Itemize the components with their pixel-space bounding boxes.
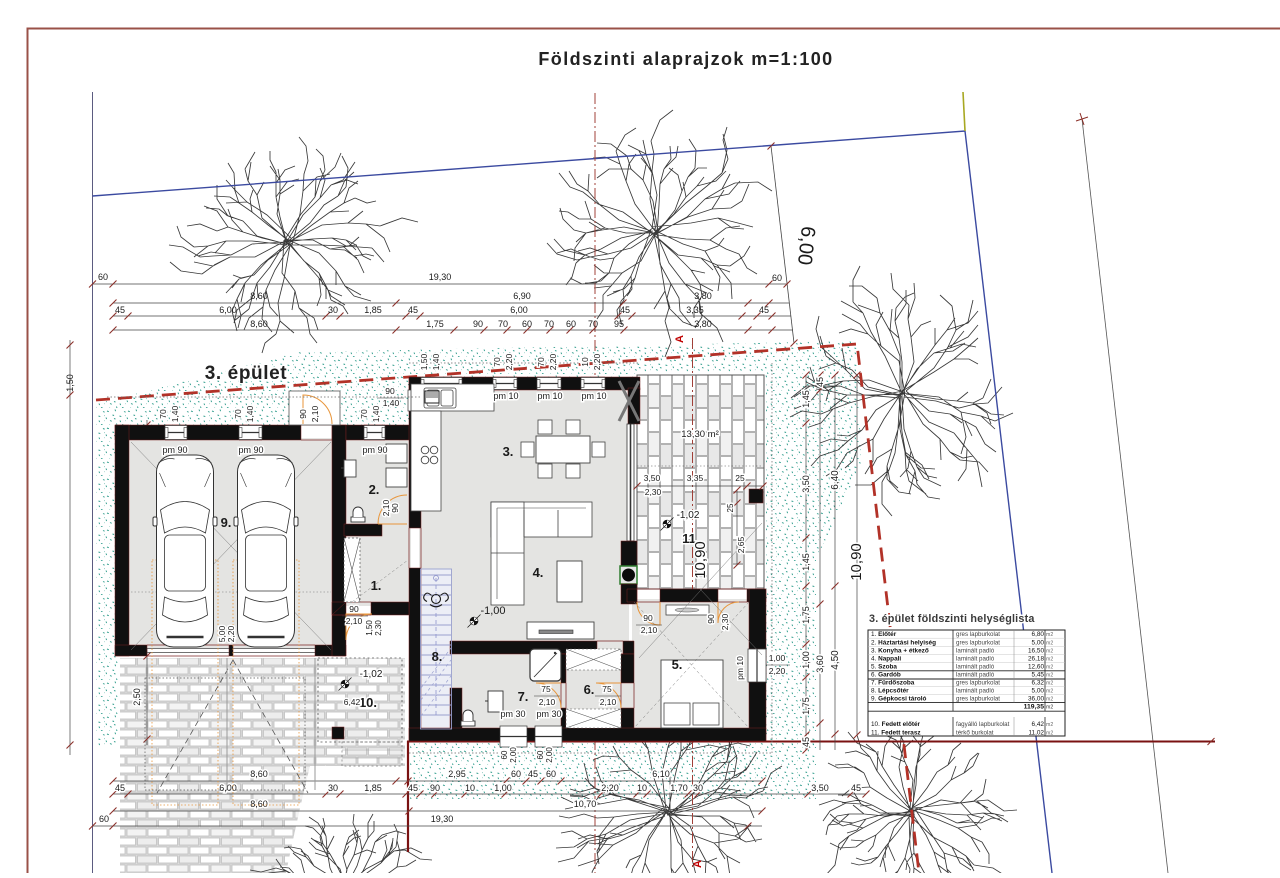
- svg-text:4,50: 4,50: [830, 650, 841, 670]
- svg-text:pm 90: pm 90: [362, 445, 387, 455]
- svg-text:30: 30: [693, 783, 703, 793]
- svg-text:m2: m2: [1046, 689, 1053, 695]
- svg-text:pm 10: pm 10: [581, 391, 606, 401]
- svg-text:3. épület földszinti helységli: 3. épület földszinti helységlista: [869, 613, 1035, 625]
- svg-text:1,75: 1,75: [801, 697, 811, 715]
- svg-text:36,00: 36,00: [1028, 696, 1044, 703]
- svg-text:2,10: 2,10: [310, 405, 320, 422]
- svg-text:m2: m2: [1046, 705, 1053, 711]
- svg-text:5.: 5.: [672, 657, 683, 672]
- svg-text:pm 90: pm 90: [162, 445, 187, 455]
- svg-text:70: 70: [158, 409, 168, 419]
- svg-text:25: 25: [735, 473, 745, 483]
- svg-text:7.: 7.: [518, 689, 529, 704]
- svg-text:m2: m2: [1046, 722, 1053, 728]
- svg-text:-1,02: -1,02: [360, 669, 383, 680]
- svg-text:3,50: 3,50: [811, 783, 829, 793]
- svg-text:gres lapburkolat: gres lapburkolat: [956, 639, 1000, 646]
- svg-text:8,60: 8,60: [250, 799, 268, 809]
- svg-text:6,90: 6,90: [513, 291, 531, 301]
- svg-text:45: 45: [408, 305, 418, 315]
- svg-text:laminált padló: laminált padló: [956, 663, 995, 670]
- svg-text:2,30: 2,30: [645, 487, 662, 497]
- svg-text:60: 60: [566, 319, 576, 329]
- svg-text:1,75: 1,75: [801, 606, 811, 624]
- svg-text:19,30: 19,30: [431, 814, 454, 824]
- svg-text:1,00: 1,00: [769, 653, 786, 663]
- svg-text:90: 90: [385, 386, 395, 396]
- svg-text:A: A: [692, 860, 704, 868]
- svg-text:119,35: 119,35: [1024, 704, 1045, 711]
- svg-text:6.: 6.: [584, 682, 595, 697]
- svg-text:8.: 8.: [432, 649, 443, 664]
- svg-text:laminált padló: laminált padló: [956, 655, 995, 662]
- svg-text:10. Fedett előtér: 10. Fedett előtér: [871, 721, 921, 728]
- svg-text:45: 45: [620, 305, 630, 315]
- svg-text:3,80: 3,80: [694, 291, 712, 301]
- svg-text:6,00: 6,00: [793, 225, 819, 266]
- svg-text:60: 60: [500, 750, 509, 759]
- svg-text:45: 45: [115, 305, 125, 315]
- svg-text:1,40: 1,40: [431, 353, 441, 370]
- svg-text:1,70: 1,70: [670, 783, 688, 793]
- svg-text:10.: 10.: [359, 695, 377, 710]
- svg-text:45: 45: [759, 305, 769, 315]
- svg-text:11,02: 11,02: [1028, 730, 1044, 737]
- svg-text:3,80: 3,80: [694, 319, 712, 329]
- svg-text:pm 10: pm 10: [537, 391, 562, 401]
- svg-text:6,42: 6,42: [1032, 721, 1045, 728]
- svg-text:1. Előtér: 1. Előtér: [871, 631, 897, 638]
- svg-text:4. Nappali: 4. Nappali: [871, 655, 901, 662]
- svg-text:3. Konyha + étkező: 3. Konyha + étkező: [871, 647, 929, 654]
- svg-text:2,00: 2,00: [509, 747, 518, 763]
- svg-text:30: 30: [328, 783, 338, 793]
- svg-text:pm 90: pm 90: [238, 445, 263, 455]
- svg-text:75: 75: [602, 684, 612, 694]
- svg-text:pm 10: pm 10: [493, 391, 518, 401]
- svg-text:2,50: 2,50: [132, 688, 142, 706]
- svg-text:2,10: 2,10: [539, 697, 556, 707]
- svg-text:6,42: 6,42: [344, 697, 361, 707]
- svg-text:30: 30: [328, 305, 338, 315]
- svg-text:m2: m2: [1046, 681, 1053, 687]
- svg-text:10: 10: [580, 357, 590, 367]
- svg-text:90: 90: [298, 409, 308, 419]
- svg-text:45: 45: [115, 783, 125, 793]
- svg-text:2,10: 2,10: [600, 697, 617, 707]
- svg-text:70: 70: [544, 319, 554, 329]
- svg-text:45: 45: [408, 783, 418, 793]
- svg-text:2,10: 2,10: [381, 499, 391, 516]
- svg-text:5,45: 5,45: [1032, 671, 1045, 678]
- svg-text:2,10: 2,10: [346, 616, 363, 626]
- svg-text:m2: m2: [1046, 697, 1053, 703]
- svg-text:5. Szoba: 5. Szoba: [871, 663, 897, 670]
- svg-text:60: 60: [99, 814, 109, 824]
- svg-text:Földszinti alaprajzok m=1:100: Földszinti alaprajzok m=1:100: [538, 49, 833, 69]
- svg-text:2,20: 2,20: [592, 353, 602, 370]
- svg-text:1,85: 1,85: [364, 783, 382, 793]
- svg-text:2,20: 2,20: [226, 625, 236, 642]
- svg-text:6,00: 6,00: [219, 783, 237, 793]
- svg-text:60: 60: [536, 750, 545, 759]
- svg-text:90: 90: [349, 604, 359, 614]
- svg-text:8,60: 8,60: [250, 769, 268, 779]
- svg-text:laminált padló: laminált padló: [956, 647, 995, 654]
- svg-text:9. Gépkocsi tároló: 9. Gépkocsi tároló: [871, 696, 927, 703]
- svg-text:1,40: 1,40: [245, 405, 255, 422]
- svg-text:2,10: 2,10: [641, 625, 658, 635]
- svg-text:gres lapburkolat: gres lapburkolat: [956, 696, 1000, 703]
- svg-text:1.: 1.: [371, 578, 382, 593]
- svg-text:m2: m2: [1046, 672, 1053, 678]
- svg-text:60: 60: [546, 769, 556, 779]
- svg-text:70: 70: [536, 357, 546, 367]
- svg-text:70: 70: [492, 357, 502, 367]
- svg-text:2,20: 2,20: [601, 783, 619, 793]
- svg-text:m2: m2: [1046, 731, 1053, 737]
- svg-text:pm 30: pm 30: [536, 709, 561, 719]
- svg-text:70: 70: [359, 409, 369, 419]
- svg-text:fagyálló lapburkolat: fagyálló lapburkolat: [956, 721, 1010, 728]
- svg-text:2,00: 2,00: [545, 747, 554, 763]
- svg-text:6,40: 6,40: [830, 470, 841, 490]
- svg-text:10: 10: [465, 783, 475, 793]
- svg-text:5,00: 5,00: [1032, 688, 1045, 695]
- svg-text:13,30 m²: 13,30 m²: [681, 429, 719, 440]
- svg-text:45: 45: [815, 377, 825, 387]
- svg-text:A: A: [674, 335, 686, 343]
- svg-text:m2: m2: [1046, 640, 1053, 646]
- svg-text:gres lapburkolat: gres lapburkolat: [956, 631, 1000, 638]
- svg-text:gres lapburkolat: gres lapburkolat: [956, 680, 1000, 687]
- svg-text:10,90: 10,90: [848, 543, 865, 581]
- svg-text:-1,02: -1,02: [677, 510, 700, 521]
- svg-text:60: 60: [98, 272, 108, 282]
- svg-text:6,10: 6,10: [652, 769, 670, 779]
- svg-text:4.: 4.: [533, 565, 544, 580]
- svg-text:1,85: 1,85: [364, 305, 382, 315]
- svg-text:10,70: 10,70: [574, 799, 597, 809]
- svg-text:8. Lépcsőtér: 8. Lépcsőtér: [871, 688, 909, 695]
- svg-text:1,45: 1,45: [801, 390, 811, 408]
- svg-text:8,60: 8,60: [250, 291, 268, 301]
- svg-text:95: 95: [614, 319, 624, 329]
- svg-text:6,00: 6,00: [219, 305, 237, 315]
- svg-text:60: 60: [772, 273, 782, 283]
- svg-text:3,35: 3,35: [687, 473, 704, 483]
- svg-text:m2: m2: [1046, 648, 1053, 654]
- svg-text:45: 45: [851, 783, 861, 793]
- svg-text:1,40: 1,40: [383, 398, 400, 408]
- svg-text:5,00: 5,00: [1032, 639, 1045, 646]
- svg-text:m2: m2: [1046, 664, 1053, 670]
- svg-text:45: 45: [801, 737, 811, 747]
- svg-text:3. épület: 3. épület: [205, 363, 288, 384]
- svg-text:9.: 9.: [221, 515, 232, 530]
- svg-text:6,32: 6,32: [1032, 680, 1045, 687]
- svg-text:2. Háztartási helyiség: 2. Háztartási helyiség: [871, 639, 936, 646]
- svg-text:térkő burkolat: térkő burkolat: [956, 730, 994, 737]
- svg-text:10,90: 10,90: [692, 541, 709, 579]
- svg-text:1,50: 1,50: [419, 353, 429, 370]
- svg-text:60: 60: [511, 769, 521, 779]
- svg-text:2,30: 2,30: [720, 613, 730, 630]
- svg-text:3,60: 3,60: [815, 655, 825, 673]
- svg-text:1,45: 1,45: [801, 553, 811, 571]
- svg-text:70: 70: [233, 409, 243, 419]
- svg-text:2,65: 2,65: [736, 536, 746, 553]
- svg-text:1,40: 1,40: [170, 405, 180, 422]
- svg-text:3,35: 3,35: [686, 305, 704, 315]
- svg-text:pm 30: pm 30: [500, 709, 525, 719]
- svg-text:12,60: 12,60: [1028, 663, 1044, 670]
- svg-text:2,20: 2,20: [548, 353, 558, 370]
- svg-text:6. Gardób: 6. Gardób: [871, 671, 901, 678]
- svg-text:3.: 3.: [503, 444, 514, 459]
- svg-text:45: 45: [528, 769, 538, 779]
- svg-text:2,30: 2,30: [374, 620, 383, 636]
- svg-text:1,40: 1,40: [371, 405, 381, 422]
- svg-text:-1,00: -1,00: [480, 605, 505, 617]
- svg-text:6,00: 6,00: [510, 305, 528, 315]
- svg-text:90: 90: [473, 319, 483, 329]
- svg-text:2,20: 2,20: [769, 666, 786, 676]
- svg-text:7. Fürdőszoba: 7. Fürdőszoba: [871, 680, 915, 687]
- svg-text:3,50: 3,50: [801, 475, 811, 493]
- svg-text:1,50: 1,50: [65, 374, 75, 392]
- svg-text:laminált padló: laminált padló: [956, 688, 995, 695]
- svg-text:2,20: 2,20: [504, 353, 514, 370]
- svg-text:laminált padló: laminált padló: [956, 671, 995, 678]
- svg-text:70: 70: [498, 319, 508, 329]
- svg-text:1,50: 1,50: [365, 620, 374, 636]
- svg-text:90: 90: [706, 614, 716, 624]
- svg-text:75: 75: [541, 684, 551, 694]
- svg-text:10: 10: [637, 783, 647, 793]
- svg-text:90: 90: [430, 783, 440, 793]
- svg-text:90: 90: [390, 503, 400, 513]
- svg-text:2.: 2.: [369, 482, 380, 497]
- svg-text:1,00: 1,00: [494, 783, 512, 793]
- svg-text:70: 70: [588, 319, 598, 329]
- svg-text:m2: m2: [1046, 656, 1053, 662]
- svg-text:11. Fedett terasz: 11. Fedett terasz: [871, 730, 921, 737]
- svg-text:pm 10: pm 10: [735, 656, 745, 680]
- svg-text:1,75: 1,75: [426, 319, 444, 329]
- svg-text:19,30: 19,30: [429, 272, 452, 282]
- svg-text:25: 25: [726, 503, 735, 512]
- svg-text:90: 90: [643, 613, 653, 623]
- svg-text:6,80: 6,80: [1032, 631, 1045, 638]
- svg-text:3,50: 3,50: [644, 473, 661, 483]
- svg-text:2,95: 2,95: [448, 769, 466, 779]
- svg-text:60: 60: [522, 319, 532, 329]
- svg-text:8,60: 8,60: [250, 319, 268, 329]
- svg-text:16,50: 16,50: [1028, 647, 1044, 654]
- svg-text:26,18: 26,18: [1028, 655, 1044, 662]
- svg-text:m2: m2: [1046, 632, 1053, 638]
- svg-text:1,00: 1,00: [801, 651, 811, 669]
